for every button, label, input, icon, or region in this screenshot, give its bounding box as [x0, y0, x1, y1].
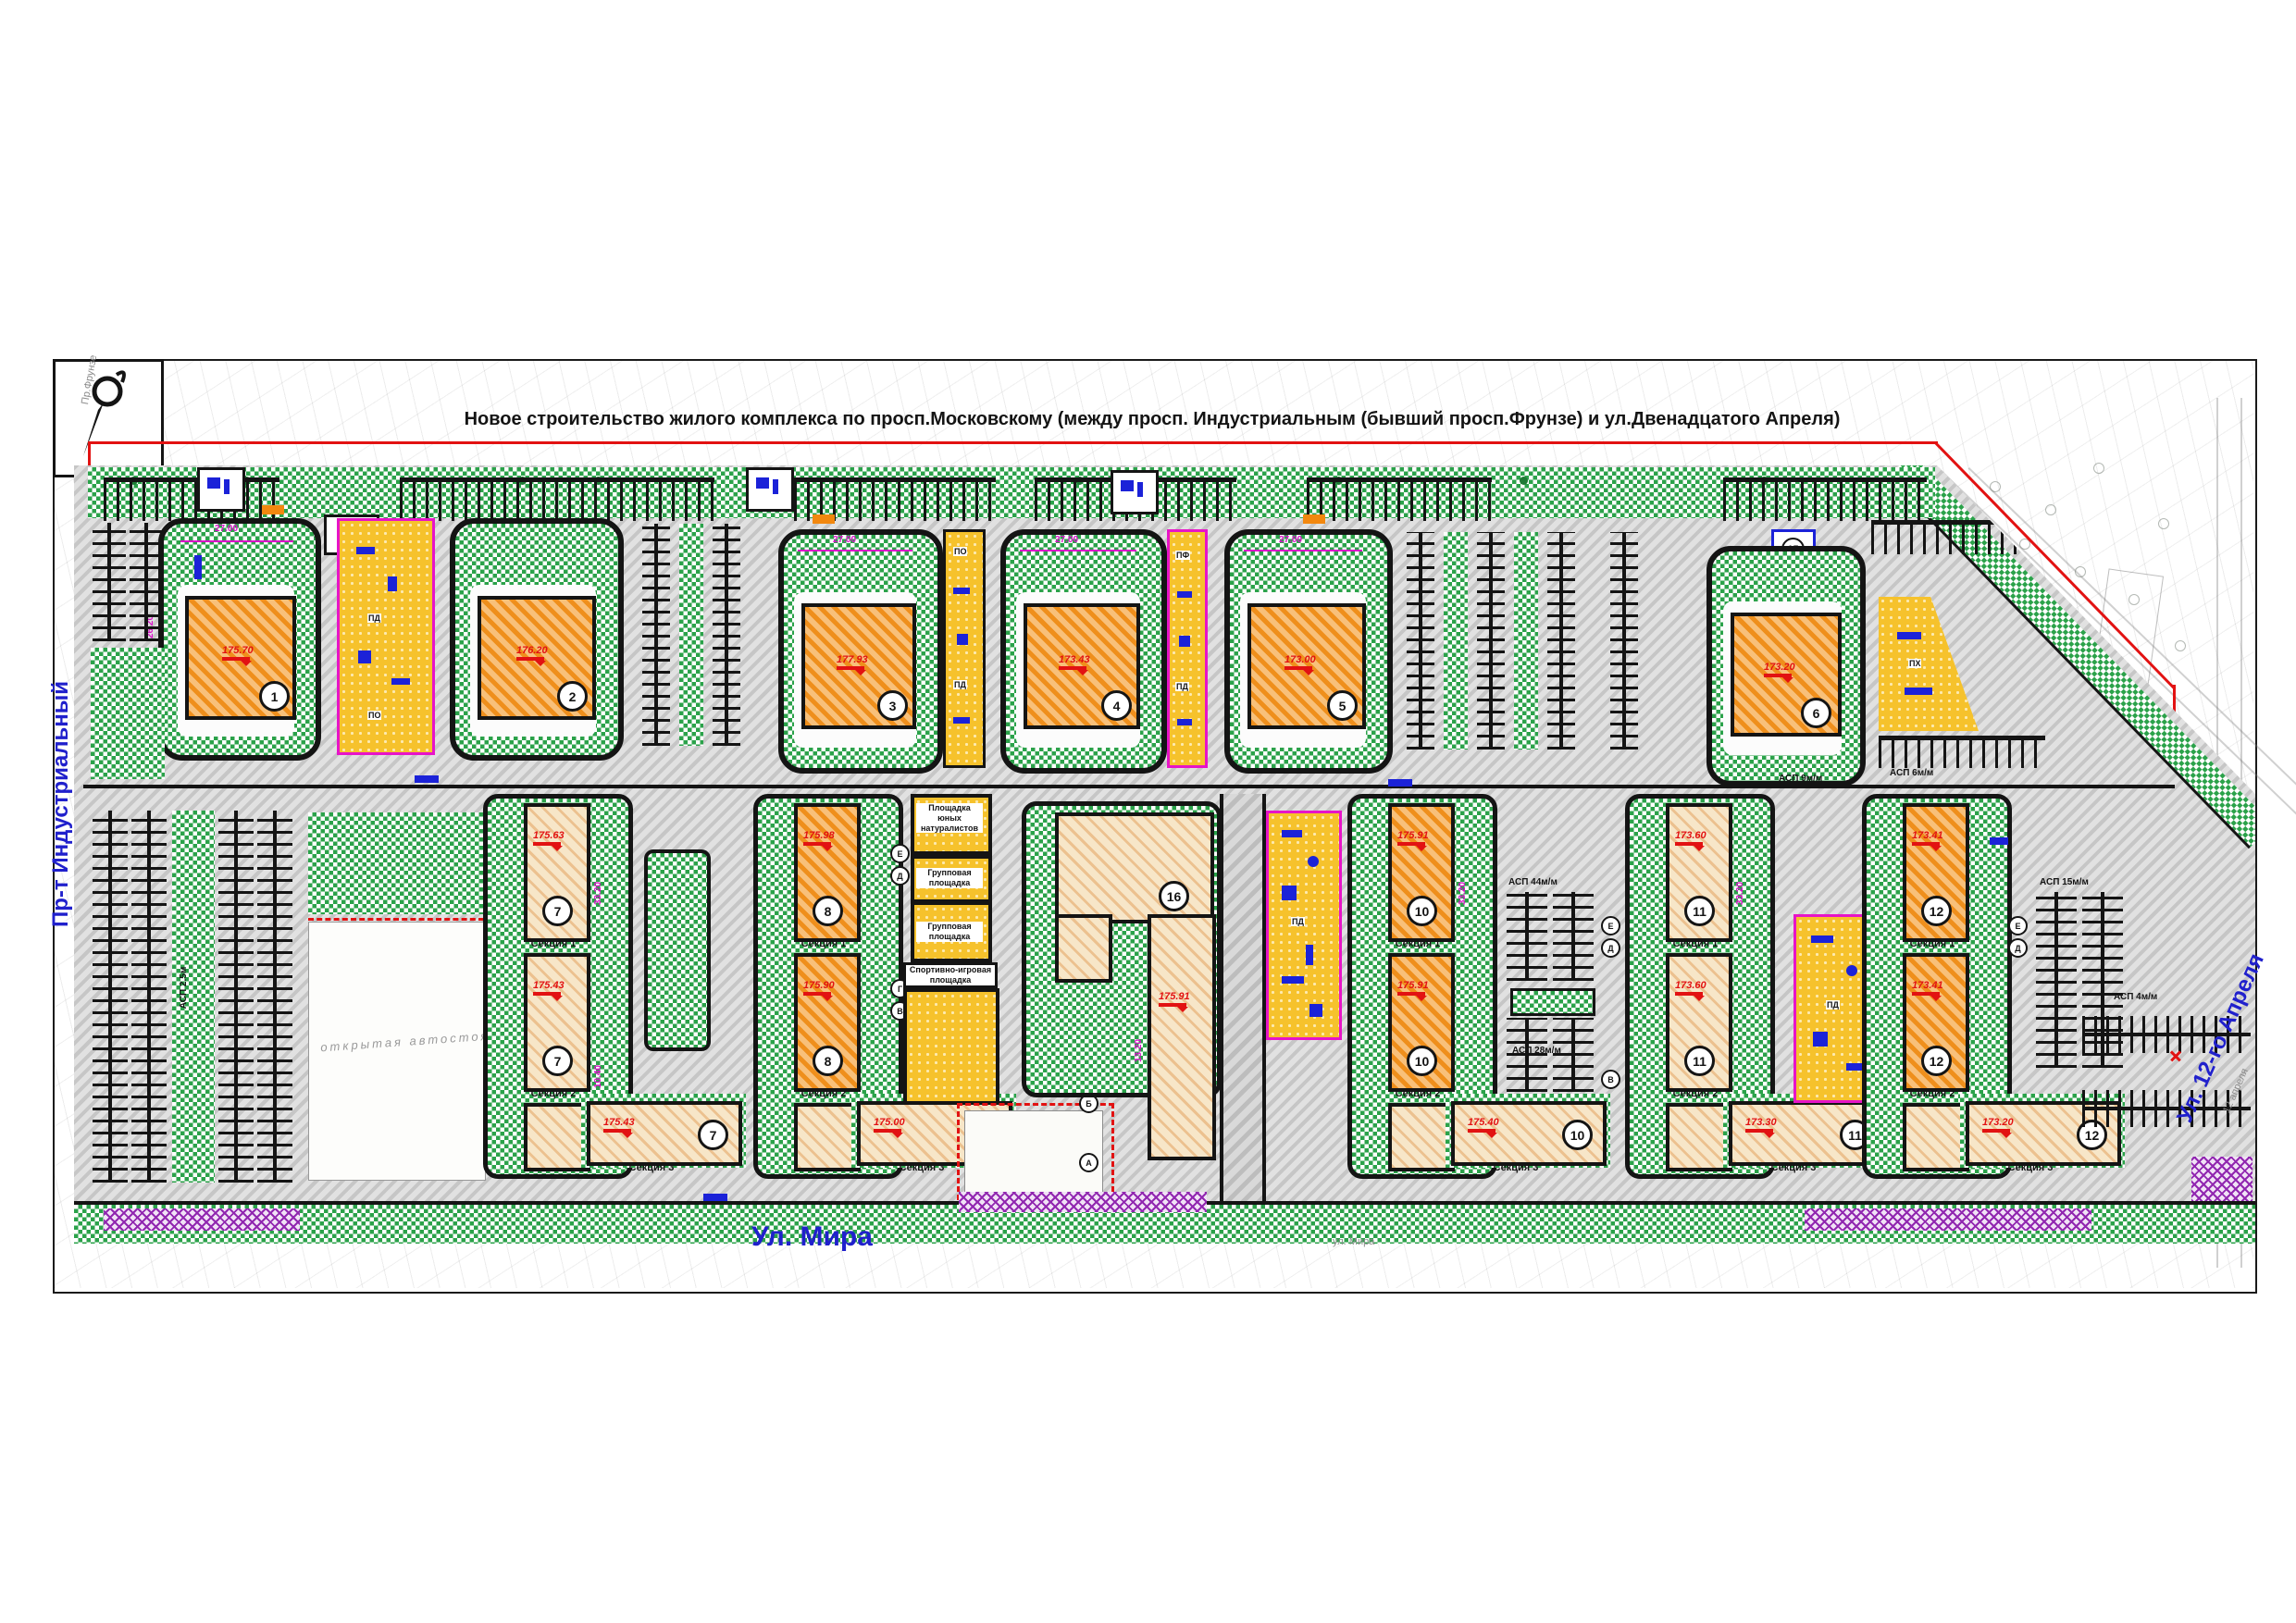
parking-stalls [1477, 532, 1505, 750]
elevation-mark: 173.20 [1982, 1117, 2014, 1128]
equipment-icon [957, 634, 968, 645]
entrance-marker [813, 514, 835, 524]
equipment-icon [953, 588, 970, 594]
elevation-mark: 173.30 [1745, 1117, 1777, 1128]
elevation-mark: 177.93 [837, 654, 868, 665]
building-10-number: 10 [1407, 896, 1437, 926]
street-label-left: Пр-т Индустриальный [48, 647, 74, 961]
building-8-number: 8 [813, 896, 843, 926]
elevation-mark: 175.63 [533, 830, 565, 841]
section-label: Секция 1 [507, 938, 600, 949]
playground-code: ПО [367, 711, 381, 720]
parking-label: АСП 44м/м [1508, 877, 1558, 887]
equipment-icon [356, 547, 375, 554]
road-accent [1388, 779, 1412, 787]
road-node: В [1601, 1070, 1620, 1089]
dimension-line [180, 540, 293, 542]
building-16-number: 16 [1159, 881, 1189, 911]
substation-icon [207, 477, 220, 489]
building-11-section-2: 11 [1666, 953, 1732, 1092]
parking-label: АСП 28м/м [1512, 1046, 1561, 1056]
green-verge [91, 648, 165, 779]
equipment-icon [391, 678, 410, 685]
equipment-icon [358, 650, 371, 663]
equipment-icon [1308, 856, 1319, 867]
building-16-wing [1055, 914, 1112, 983]
equipment-icon [1282, 830, 1302, 837]
tree-icon [1990, 481, 2001, 492]
section-label: Секция 1 [1649, 938, 1742, 949]
building-12-section-1: 12 [1903, 803, 1969, 942]
parking-stalls [1610, 532, 1638, 750]
playground-group-1: Групповая площадка [911, 855, 992, 903]
sidewalk-purple [104, 1208, 300, 1231]
parking-label: АСП 6м/м [1890, 768, 1933, 778]
road-accent [703, 1194, 727, 1201]
road-edge-line [83, 785, 2175, 788]
building-11-number: 11 [1684, 1046, 1715, 1076]
dimension-label: 27.00 [1055, 535, 1078, 545]
dimension-label: 13.20 [1134, 1039, 1144, 1062]
green-verge [679, 524, 703, 746]
playground-code: ПХ [1908, 659, 1921, 668]
section-label: Секция 1 [1371, 938, 1464, 949]
playground-strip-2: ПФ ПД [1167, 529, 1208, 768]
building-6: 173.20 6 [1731, 613, 1842, 737]
parking-stalls [1879, 736, 2045, 768]
red-dashed-line [308, 918, 484, 921]
parking-stalls [257, 811, 292, 1183]
building-12-section-2: 12 [1903, 953, 1969, 1092]
building-1: 175.70 1 [185, 596, 296, 720]
building-10-section-3: 175.40 10 [1451, 1101, 1607, 1166]
building-2-number: 2 [557, 681, 588, 712]
green-island [1510, 988, 1595, 1016]
elevation-mark: 175.98 [803, 830, 835, 841]
green-top-strip [88, 467, 1935, 518]
road-accent [415, 775, 439, 783]
playground-group-2: Групповая площадка [911, 901, 992, 962]
building-4-number: 4 [1101, 690, 1132, 721]
dimension-line [1244, 550, 1362, 551]
road-node: Е [1601, 916, 1620, 935]
parking-stalls [93, 523, 126, 641]
equipment-icon [1897, 632, 1921, 639]
parking-stalls [2036, 892, 2077, 1068]
equipment-icon [1846, 965, 1857, 976]
topo-street-text: ул. Мира [1333, 1236, 1374, 1247]
building-10-number: 10 [1562, 1120, 1593, 1150]
building-7-section-1: 7 [524, 803, 590, 942]
playground-name: Площадка юных натуралистов [916, 803, 983, 833]
building-7-section-2: 7 [524, 953, 590, 1092]
building-8-number: 8 [813, 1046, 843, 1076]
green-verge [1444, 532, 1468, 750]
parking-stalls [642, 524, 670, 746]
central-drive [1220, 794, 1266, 1201]
tree-icon [2045, 504, 2056, 515]
road-node: Е [890, 844, 910, 863]
tree-icon [2158, 518, 2169, 529]
green-island [644, 849, 711, 1051]
road-accent [194, 555, 202, 579]
section-label: Секция 3 [1984, 1162, 2077, 1173]
tree-icon [2075, 566, 2086, 577]
building-8-section-2: 8 [794, 953, 861, 1092]
equipment-icon [1179, 636, 1190, 647]
elevation-mark: 176.20 [516, 645, 548, 656]
dimension-label: 33.20 [1458, 882, 1468, 905]
building-10-section-2: 10 [1388, 953, 1455, 1092]
parking-stalls [1507, 892, 1547, 981]
equipment-icon [1309, 1004, 1322, 1017]
building-10-number: 10 [1407, 1046, 1437, 1076]
elevation-mark: 173.00 [1285, 654, 1316, 665]
elevation-mark: 173.60 [1675, 830, 1706, 841]
playground-strip-1: ПО ПД [943, 529, 986, 768]
building-11-section-3: 173.30 11 [1729, 1101, 1884, 1166]
building-5-number: 5 [1327, 690, 1358, 721]
playground-yard-1: ПД ПО [337, 518, 435, 755]
substation-icon [224, 479, 230, 494]
parking-stalls [218, 811, 254, 1183]
parking-stalls [400, 477, 714, 521]
siteplan-sheet: Новое строительство жилого комплекса по … [0, 0, 2296, 1623]
road-node: Е [2008, 916, 2028, 935]
entrance-marker [262, 505, 284, 514]
parking-stalls [713, 524, 740, 746]
substation-box [746, 467, 794, 512]
parking-stalls [1723, 477, 1927, 521]
playground-code: ПД [1826, 1000, 1840, 1010]
equipment-icon [1905, 688, 1932, 695]
parking-stalls [130, 523, 163, 641]
playground-name: Групповая площадка [916, 868, 983, 888]
elevation-mark: 175.43 [533, 980, 565, 991]
playground-code: ПД [1175, 682, 1189, 691]
open-parking-lot: открытая автостоянка [308, 922, 486, 1181]
section-label: Секция 3 [1470, 1162, 1562, 1173]
sidewalk-purple [2191, 1157, 2253, 1201]
dimension-label: 33.20 [1735, 882, 1745, 905]
dimension-label: 10.40 [593, 1065, 603, 1088]
dimension-label: 27.00 [1279, 535, 1302, 545]
parking-label: АСП 9м/м [1779, 774, 1822, 784]
equipment-icon [953, 717, 970, 724]
street-label-bottom: Ул. Мира [751, 1221, 873, 1253]
parking-stalls [1407, 532, 1434, 750]
building-5: 173.00 5 [1247, 603, 1366, 729]
parking-stalls [1553, 892, 1594, 981]
drawing-title: Новое строительство жилого комплекса по … [278, 409, 2027, 430]
parking-label: АСП 15м/м [2040, 877, 2089, 887]
section-label: Секция 3 [1747, 1162, 1840, 1173]
playground-code: ПО [953, 547, 967, 556]
playground-code: ПД [953, 680, 967, 689]
elevation-mark: 175.90 [803, 980, 835, 991]
building-3-number: 3 [877, 690, 908, 721]
parking-stalls [1307, 477, 1492, 521]
parking-stalls [104, 477, 279, 521]
dimension-label: 27.00 [215, 524, 238, 534]
playground-code: ПД [1291, 917, 1305, 926]
parking-label: АСП 2.5м [179, 967, 189, 1009]
playground-sport-label: Спортивно-игровая площадка [903, 962, 998, 988]
red-boundary-top [88, 441, 1938, 444]
building-12-number: 12 [1921, 1046, 1952, 1076]
elevation-mark: 175.91 [1159, 991, 1190, 1002]
road-node: Д [1601, 938, 1620, 958]
playground-code: ПД [367, 613, 381, 623]
building-11-number: 11 [1684, 896, 1715, 926]
substation-box [1111, 470, 1159, 514]
equipment-icon [1282, 976, 1304, 984]
road-accent [1990, 837, 2008, 845]
dimension-label: 27.00 [833, 535, 856, 545]
entrance-marker [1303, 514, 1325, 524]
playground-code: ПФ [1175, 551, 1190, 560]
site-area: 13 15 27.00 26.20 175.70 1 ПД ПО 176.20 [0, 0, 2296, 1623]
section-label: Секция 3 [875, 1162, 968, 1173]
building-1-number: 1 [259, 681, 290, 712]
building-3: 177.93 3 [801, 603, 916, 729]
elevation-mark: 175.00 [874, 1117, 905, 1128]
building-16-lower [1148, 914, 1216, 1160]
playground-central: ПД [1266, 811, 1342, 1040]
tree-icon [2093, 463, 2104, 474]
building-12-number: 12 [1921, 896, 1952, 926]
substation-box [197, 467, 245, 512]
elevation-mark: 173.60 [1675, 980, 1706, 991]
elevation-mark: 175.70 [222, 645, 254, 656]
parking-label: АСП 4м/м [2114, 992, 2157, 1002]
elevation-mark: 173.41 [1912, 830, 1943, 841]
equipment-icon [1177, 719, 1192, 725]
building-7-section-3: 175.43 7 [587, 1101, 742, 1166]
tree-icon [1520, 477, 1528, 485]
building-4: 173.43 4 [1024, 603, 1140, 729]
road-node: Д [2008, 938, 2028, 958]
sidewalk-purple [959, 1192, 1207, 1212]
playground-name: Групповая площадка [916, 922, 983, 942]
playground-naturalists: Площадка юных натуралистов [911, 794, 992, 855]
building-2: 176.20 2 [478, 596, 596, 720]
elevation-mark: 175.43 [603, 1117, 635, 1128]
tree-icon [2175, 640, 2186, 651]
equipment-icon [1177, 591, 1192, 598]
equipment-icon [388, 576, 397, 591]
building-7-number: 7 [542, 896, 573, 926]
building-6-number: 6 [1801, 698, 1831, 728]
green-verge [1514, 532, 1538, 750]
parking-stalls [1547, 532, 1575, 750]
elevation-mark: 173.43 [1059, 654, 1090, 665]
building-11-section-1: 11 [1666, 803, 1732, 942]
parking-stalls [131, 811, 167, 1183]
substation-icon [1121, 480, 1134, 491]
substation-icon [756, 477, 769, 489]
dimension-line [798, 550, 912, 551]
dimension-line [1020, 550, 1136, 551]
dimension-label: 33.20 [593, 882, 603, 905]
equipment-icon [1282, 886, 1297, 900]
road-node: А [1079, 1153, 1098, 1172]
equipment-icon [1811, 935, 1833, 943]
section-label: Секция 3 [605, 1162, 698, 1173]
substation-icon [773, 479, 778, 494]
elevation-mark: 173.41 [1912, 980, 1943, 991]
elevation-mark: 173.20 [1764, 662, 1795, 673]
parking-stalls [93, 811, 128, 1183]
building-16-upper [1055, 812, 1214, 923]
substation-icon [1137, 482, 1143, 497]
equipment-icon [1306, 945, 1313, 965]
building-8-section-1: 8 [794, 803, 861, 942]
elevation-mark: 175.91 [1397, 830, 1429, 841]
equipment-icon [1813, 1032, 1828, 1047]
section-label: Секция 1 [1886, 938, 1979, 949]
elevation-mark: 175.40 [1468, 1117, 1499, 1128]
section-label: Секция 1 [777, 938, 870, 949]
building-7-number: 7 [698, 1120, 728, 1150]
sidewalk-purple [1805, 1208, 2091, 1231]
playground-sport [903, 988, 999, 1105]
road-node: Д [890, 866, 910, 886]
north-arrow-box [53, 359, 164, 477]
building-7-number: 7 [542, 1046, 573, 1076]
green-block [308, 812, 484, 914]
elevation-mark: 175.91 [1397, 980, 1429, 991]
building-10-section-1: 10 [1388, 803, 1455, 942]
